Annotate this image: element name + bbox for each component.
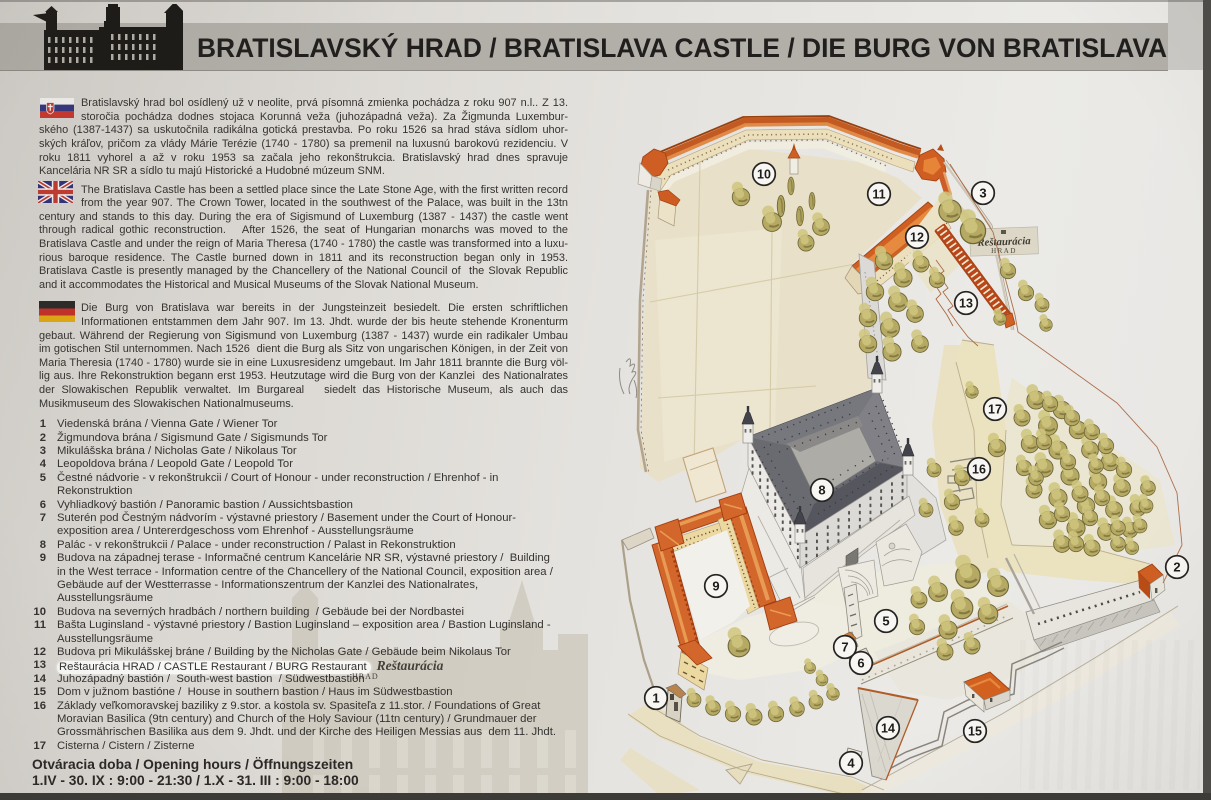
svg-text:10: 10 xyxy=(757,168,771,182)
svg-text:17: 17 xyxy=(988,403,1002,417)
svg-text:HRAD: HRAD xyxy=(991,247,1017,255)
svg-text:13: 13 xyxy=(959,297,973,311)
svg-text:3: 3 xyxy=(979,186,986,201)
svg-text:2: 2 xyxy=(1173,560,1180,575)
svg-text:14: 14 xyxy=(881,722,895,736)
svg-text:15: 15 xyxy=(968,725,982,739)
svg-text:1: 1 xyxy=(652,691,659,706)
svg-text:16: 16 xyxy=(972,463,986,477)
svg-text:7: 7 xyxy=(841,640,848,655)
svg-text:4: 4 xyxy=(847,756,855,771)
svg-text:9: 9 xyxy=(712,579,719,594)
svg-text:8: 8 xyxy=(818,483,825,498)
svg-text:5: 5 xyxy=(882,614,889,629)
svg-text:12: 12 xyxy=(910,231,924,245)
svg-text:11: 11 xyxy=(872,188,885,202)
svg-text:6: 6 xyxy=(857,656,864,671)
